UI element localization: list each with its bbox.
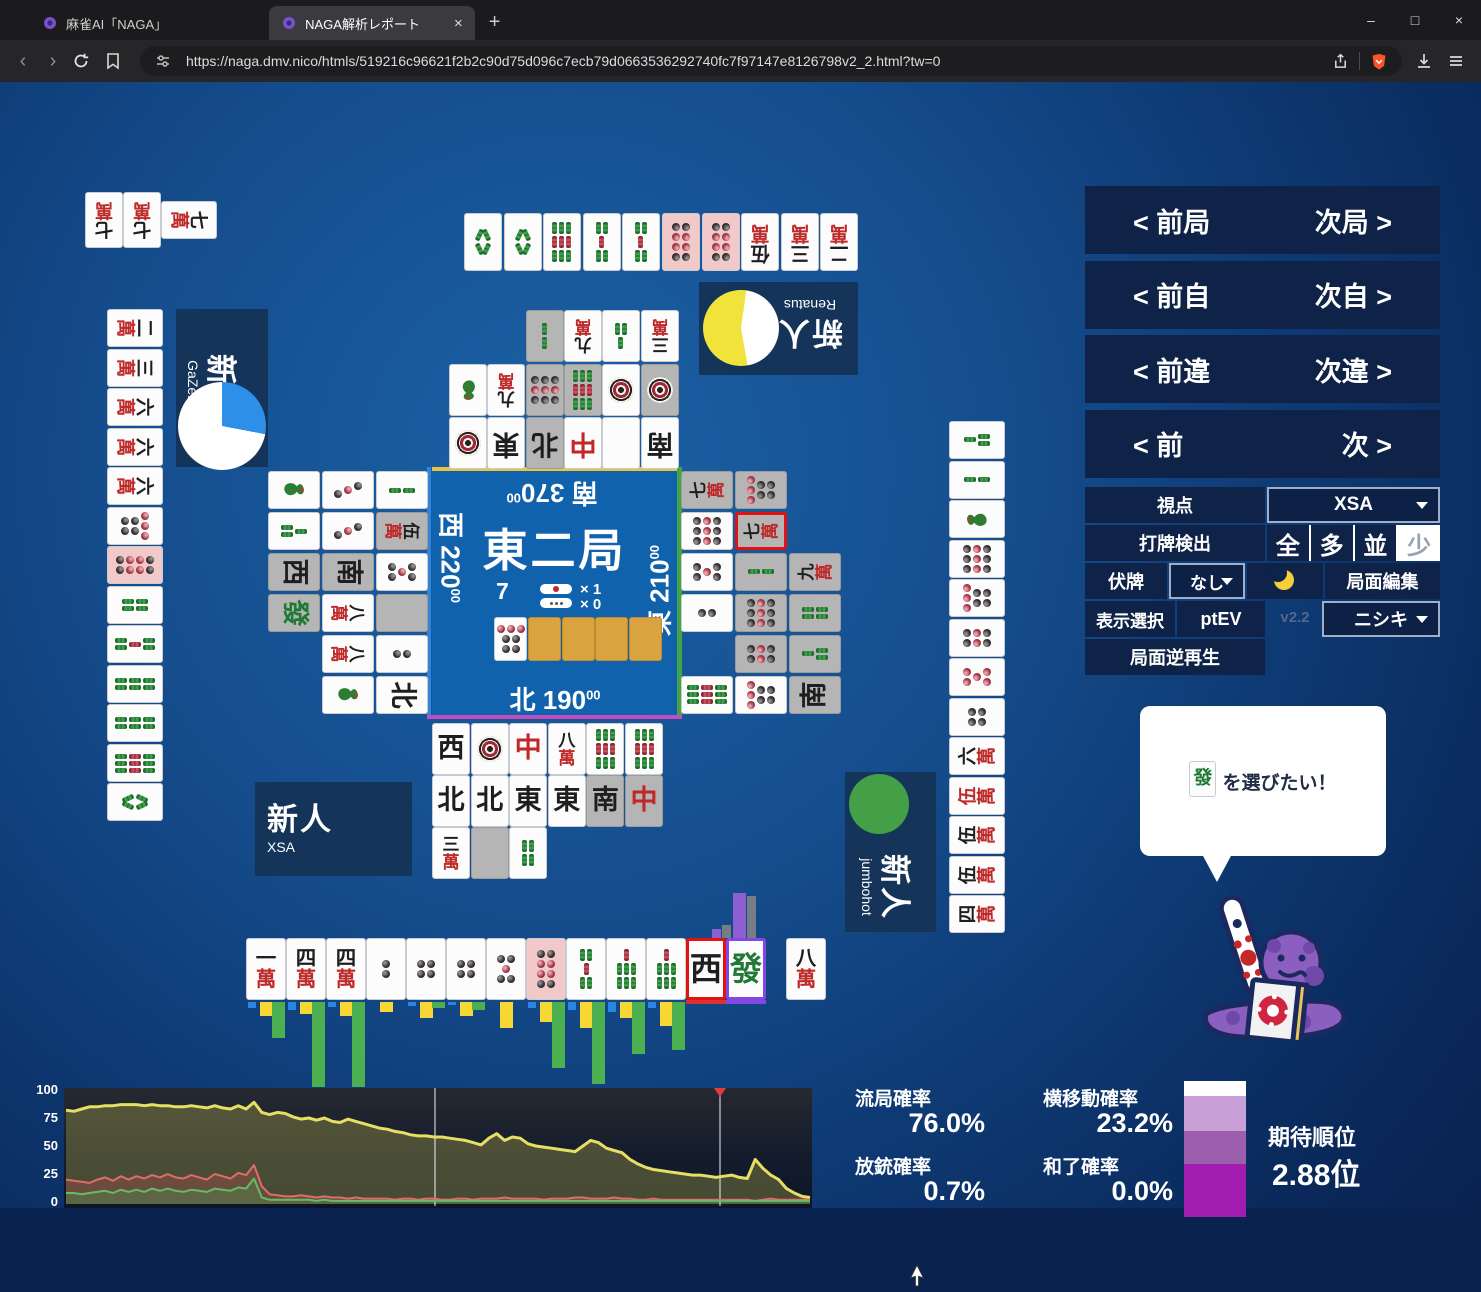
discard-eval-bar — [288, 1002, 296, 1010]
menu-icon[interactable] — [1443, 52, 1469, 70]
right-pond-tile-9m: 九萬 — [789, 553, 841, 591]
bottom-pond-tile-3m: 三萬 — [432, 827, 470, 879]
top-pond-tile-1p — [449, 417, 487, 469]
bottom-pond-tile-C: 中 — [625, 775, 663, 827]
right-pond-tile-7p — [735, 471, 787, 509]
left-hand-tile-3m: 三萬 — [107, 349, 163, 387]
expected-rank-label: 期待順位 — [1268, 1120, 1356, 1152]
bottom-hand-tile-2p[interactable] — [366, 938, 406, 1000]
right-hand-tile-6m: 六萬 — [949, 737, 1005, 775]
discard-eval-bar — [432, 1002, 445, 1008]
left-pond-tile-5m: 伍萬 — [376, 512, 428, 550]
left-hand-tile-6m: 六萬 — [107, 467, 163, 505]
hidden-dora-tile — [562, 617, 595, 661]
next-button[interactable]: 次 > — [1342, 424, 1392, 463]
dahai-detect-segmented: 全多並少 — [1267, 525, 1440, 561]
model-choice-bar — [712, 929, 721, 938]
top-pond-tile-2s — [526, 310, 564, 362]
viewpoint-label: 視点 — [1085, 487, 1265, 523]
left-hand-tile-6m: 六萬 — [107, 428, 163, 466]
bottom-pond-tile-9s — [586, 723, 624, 775]
discard-eval-bar — [552, 1002, 565, 1068]
top-pond-tile-9p — [526, 364, 564, 416]
viewpoint-select[interactable]: XSA — [1267, 487, 1440, 523]
bubble-text: を選びたい！ — [1222, 768, 1336, 795]
houra-value: 0.0% — [1043, 1176, 1173, 1207]
share-icon[interactable] — [1327, 53, 1353, 70]
bottom-hand-tile-4p[interactable] — [406, 938, 446, 1000]
discard-eval-bar — [608, 1002, 616, 1012]
top-hand-tile-3m: 三萬 — [781, 213, 819, 271]
discard-eval-bar — [312, 1002, 325, 1087]
brave-shield-icon[interactable] — [1366, 52, 1392, 71]
discard-eval-bar — [380, 1002, 393, 1012]
chart-y-tick: 50 — [18, 1138, 58, 1153]
left-pond-tile-2p — [376, 635, 428, 673]
yokoidou-label: 横移動確率 — [1043, 1084, 1138, 1111]
top-hand-tile-2m: 二萬 — [820, 213, 858, 271]
chart-y-tick: 75 — [18, 1110, 58, 1125]
right-hand-tile-0p — [949, 658, 1005, 696]
wall-count: 7 — [496, 578, 509, 605]
model-choice-bar — [747, 896, 756, 938]
nav-row: < 前次 > — [1085, 410, 1440, 478]
right-pond-tile-3s — [789, 635, 841, 673]
tab1-label: 麻雀AI「NAGA」 — [66, 14, 167, 33]
divider — [1359, 52, 1360, 70]
right-pond-tile-9s — [681, 676, 733, 714]
left-hand-tile-7p — [107, 507, 163, 545]
dahai-detect-label: 打牌検出 — [1085, 525, 1265, 561]
naga-favicon-icon — [281, 15, 297, 31]
bottom-pond-tile-S: 南 — [586, 775, 624, 827]
score-top: 南 37000 — [472, 476, 632, 513]
tile-underline — [726, 1000, 766, 1004]
expected-rank-bar — [1184, 1081, 1246, 1217]
discard-eval-bar — [472, 1002, 485, 1010]
naga-report-page: 南 37000 西 22000 東 21000 北 19000 東二局 7 × … — [0, 82, 1481, 1208]
tile-underline — [686, 1000, 726, 1004]
player-bottom-rank: 新人 — [267, 794, 333, 839]
left-hand-tile-9s — [107, 744, 163, 782]
mouse-cursor-icon — [908, 1265, 926, 1292]
top-pond-tile-3s — [602, 310, 640, 362]
dahai-option-並[interactable]: 並 — [1355, 525, 1399, 561]
right-pond-tile-2p — [681, 594, 733, 632]
top-pond-tile-S: 南 — [641, 417, 679, 469]
discard-eval-bar — [632, 1002, 645, 1054]
naga-speech-bubble: 發を選びたい！ — [1140, 706, 1386, 856]
forward-icon[interactable]: › — [38, 50, 68, 73]
reload-icon[interactable] — [68, 52, 94, 70]
model-select[interactable]: ニシキ — [1322, 601, 1440, 637]
bottom-pond-tile-C: 中 — [509, 723, 547, 775]
bottom-pond-tile-8m: 八萬 — [548, 723, 586, 775]
top-pond-tile-C: 中 — [564, 417, 602, 469]
discard-eval-bar — [248, 1002, 256, 1008]
right-pond-tile-5p — [681, 553, 733, 591]
hidden-dora-tile — [528, 617, 561, 661]
chart-y-tick: 0 — [18, 1194, 58, 1209]
top-pond-tile-9m: 九萬 — [564, 310, 602, 362]
right-pond-tile-9p — [735, 594, 787, 632]
nav-row: < 前自次自 > — [1085, 261, 1440, 329]
discard-eval-bar — [272, 1002, 285, 1038]
player-right-name: 新人jumbohot — [865, 822, 915, 952]
prev-button[interactable]: < 前 — [1133, 424, 1183, 463]
top-hand-tile-9s — [543, 213, 581, 271]
rank-bar-segment — [1184, 1096, 1246, 1131]
yokoidou-value: 23.2% — [1043, 1108, 1173, 1139]
right-hand-tile-7p — [949, 579, 1005, 617]
bottom-hand-tile-P[interactable]: 發 — [726, 938, 766, 1000]
bottom-pond-tile-4s — [509, 827, 547, 879]
tab-close-icon[interactable]: × — [454, 15, 463, 32]
reverse-replay-button[interactable]: 局面逆再生 — [1085, 639, 1265, 675]
left-pond-tile-N: 北 — [376, 676, 428, 714]
dora-indicator-tile-7p — [494, 617, 527, 661]
top-pond-tile-Hk — [602, 417, 640, 469]
rank-bar-segment — [1184, 1131, 1246, 1164]
tab-naga-home[interactable]: 麻雀AI「NAGA」 — [30, 6, 179, 40]
right-hand-tile-2s — [949, 461, 1005, 499]
left-pond-tile-W: 西 — [268, 553, 320, 591]
top-pond-tile-1p — [641, 364, 679, 416]
right-pond-tile-7p — [735, 676, 787, 714]
discard-eval-bar — [568, 1002, 576, 1010]
top-hand-tile-8s — [504, 213, 542, 271]
ryuukyoku-value: 76.0% — [855, 1108, 985, 1139]
nav-row: < 前違次違 > — [1085, 335, 1440, 403]
honba-stick-icon — [540, 598, 572, 608]
discard-eval-bar — [648, 1002, 656, 1008]
discard-eval-bar — [528, 1002, 536, 1008]
bookmark-icon[interactable] — [100, 52, 126, 70]
new-tab-button[interactable]: + — [489, 11, 501, 34]
next-button[interactable]: 次局 > — [1315, 201, 1392, 240]
hidden-dora-tile — [629, 617, 662, 661]
naga-favicon-icon — [42, 15, 58, 31]
top-pond-tile-E: 東 — [487, 417, 525, 469]
prev-button[interactable]: < 前局 — [1133, 201, 1210, 240]
back-icon[interactable]: ‹ — [8, 50, 38, 73]
prev-button[interactable]: < 前違 — [1133, 350, 1210, 389]
download-icon[interactable] — [1411, 52, 1437, 70]
fusehai-select[interactable]: なし — [1169, 563, 1245, 599]
top-hand-tile-8p — [702, 213, 740, 271]
bottom-hand-tile-8p[interactable] — [526, 938, 566, 1000]
dahai-option-全[interactable]: 全 — [1267, 525, 1311, 561]
right-hand-tile-5m: 伍萬 — [949, 816, 1005, 854]
browser-tab-bar: 麻雀AI「NAGA」 NAGA解析レポート × + – □ × — [0, 0, 1481, 40]
discard-eval-bar — [592, 1002, 605, 1084]
right-hand-tile-9p — [949, 540, 1005, 578]
url-text: https://naga.dmv.nico/htmls/519216c96621… — [186, 53, 1327, 69]
chart-y-tick: 25 — [18, 1166, 58, 1181]
right-pond-tile-2s — [735, 553, 787, 591]
right-hand-tile-0m: 伍萬 — [949, 777, 1005, 815]
window-maximize-button[interactable]: □ — [1393, 12, 1437, 28]
bottom-pond-tile-9s — [625, 723, 663, 775]
left-hand-tile-4s — [107, 586, 163, 624]
bottom-hand-tile-7s[interactable] — [606, 938, 646, 1000]
right-hand-tile-4m: 四萬 — [949, 895, 1005, 933]
bottom-hand-tile-4p[interactable] — [446, 938, 486, 1000]
top-pond-tile-1p — [602, 364, 640, 416]
display-value-button[interactable]: ptEV — [1177, 601, 1265, 637]
nav-row: < 前局次局 > — [1085, 186, 1440, 254]
left-hand-tile-6s — [107, 665, 163, 703]
top-meld-tile-7m: 七萬 — [85, 192, 123, 248]
bottom-hand-tile-7s[interactable] — [646, 938, 686, 1000]
left-pond-tile-P: 發 — [268, 594, 320, 632]
left-hand-tile-6m: 六萬 — [107, 388, 163, 426]
left-pond-tile-3p — [322, 471, 374, 509]
left-pond-tile-3p — [322, 512, 374, 550]
right-hand-tile-3s — [949, 421, 1005, 459]
prev-button[interactable]: < 前自 — [1133, 275, 1210, 314]
right-pond-tile-S: 南 — [789, 676, 841, 714]
chevron-down-icon — [1221, 578, 1233, 585]
top-meld-tile-7m: 七萬 — [123, 192, 161, 248]
moon-icon — [1274, 570, 1296, 592]
window-minimize-button[interactable]: – — [1349, 12, 1393, 28]
houjuu-label: 放銃確率 — [855, 1152, 931, 1179]
display-select-label: 表示選択 — [1085, 601, 1175, 637]
discard-eval-bar — [500, 1002, 513, 1028]
right-pond-tile-7m: 七萬 — [735, 512, 787, 550]
right-hand-tile-5m: 伍萬 — [949, 856, 1005, 894]
right-pond-tile-6p — [735, 635, 787, 673]
top-hand-tile-8p — [662, 213, 700, 271]
dark-mode-button[interactable] — [1247, 563, 1323, 599]
window-controls: – □ × — [1349, 0, 1481, 40]
round-label: 東二局 — [432, 514, 677, 579]
bottom-hand-tile-4m[interactable]: 四萬 — [326, 938, 366, 1000]
left-pond-tile-1s — [268, 471, 320, 509]
bottom-hand-tile-5p[interactable] — [486, 938, 526, 1000]
site-settings-icon[interactable] — [150, 53, 176, 69]
board-edit-button[interactable]: 局面編集 — [1325, 563, 1440, 599]
houra-label: 和了確率 — [1043, 1152, 1119, 1179]
model-choice-bar — [733, 893, 746, 938]
right-pond-tile-7m: 七萬 — [681, 471, 733, 509]
version-label: v2.2 — [1270, 609, 1320, 626]
bottom-pond-tile-E: 東 — [548, 775, 586, 827]
discard-eval-bar — [328, 1002, 336, 1007]
left-hand-tile-2m: 二萬 — [107, 309, 163, 347]
left-hand-tile-6s — [107, 704, 163, 742]
bottom-pond-tile-1p — [471, 723, 509, 775]
right-hand-tile-4p — [949, 698, 1005, 736]
discard-eval-bar — [448, 1002, 456, 1005]
honba-stick-count: × 0 — [580, 596, 601, 613]
expected-rank-value: 2.88位 — [1272, 1150, 1360, 1194]
chevron-down-icon — [1416, 616, 1428, 623]
bottom-pond-tile-E: 東 — [509, 775, 547, 827]
rank-bar-segment — [1184, 1164, 1246, 1217]
dahai-option-少[interactable]: 少 — [1398, 525, 1440, 561]
rank-bar-segment — [1184, 1081, 1246, 1096]
fusehai-label: 伏牌 — [1085, 563, 1167, 599]
hidden-dora-tile — [595, 617, 628, 661]
bottom-hand-tile-W[interactable]: 西 — [686, 938, 726, 1000]
player-top-pie-chart — [703, 290, 779, 366]
speech-bubble-tail — [1202, 854, 1232, 882]
bottom-pond-tile-W: 西 — [432, 723, 470, 775]
right-hand-tile-6p — [949, 619, 1005, 657]
left-pond-tile-Hk — [376, 594, 428, 632]
top-pond-tile-3m: 三萬 — [641, 310, 679, 362]
bottom-pond-tile-N: 北 — [432, 775, 470, 827]
next-button[interactable]: 次違 > — [1315, 350, 1392, 389]
bottom-hand-draw-tile-8m[interactable]: 八萬 — [786, 938, 826, 1000]
model-choice-bar — [722, 925, 731, 938]
right-pond-tile-9p — [681, 512, 733, 550]
right-hand-tile-1s — [949, 500, 1005, 538]
left-pond-tile-1s — [322, 676, 374, 714]
bottom-hand-tile-4m[interactable]: 四萬 — [286, 938, 326, 1000]
discard-eval-bar — [352, 1002, 365, 1087]
win-probability-chart — [64, 1088, 812, 1208]
left-hand-tile-5s — [107, 625, 163, 663]
top-pond-tile-9s — [564, 364, 602, 416]
left-pond-tile-8m: 八萬 — [322, 594, 374, 632]
top-pond-tile-9m: 九萬 — [487, 364, 525, 416]
player-left-pie-chart — [178, 382, 266, 470]
riichi-stick-icon — [540, 584, 572, 594]
next-button[interactable]: 次自 > — [1315, 275, 1392, 314]
left-hand-tile-8s — [107, 783, 163, 821]
right-pond-tile-4s — [789, 594, 841, 632]
window-close-button[interactable]: × — [1437, 12, 1481, 28]
url-bar[interactable]: https://naga.dmv.nico/htmls/519216c96621… — [140, 46, 1402, 76]
left-hand-tile-8p — [107, 546, 163, 584]
bottom-pond-tile-N: 北 — [471, 775, 509, 827]
top-hand-tile-5s — [583, 213, 621, 271]
bottom-hand-tile-1m[interactable]: 一萬 — [246, 938, 286, 1000]
left-pond-tile-5p — [376, 553, 428, 591]
top-hand-tile-5s — [622, 213, 660, 271]
chart-y-tick: 100 — [18, 1082, 58, 1097]
bottom-hand-tile-5s[interactable] — [566, 938, 606, 1000]
left-pond-tile-S: 南 — [322, 553, 374, 591]
tab2-label: NAGA解析レポート — [305, 14, 420, 33]
player-box-bottom: 新人 XSA — [255, 782, 412, 876]
bottom-pond-tile-Hk — [471, 827, 509, 879]
discard-eval-bar — [672, 1002, 685, 1050]
ryuukyoku-label: 流局確率 — [855, 1084, 931, 1111]
top-hand-tile-5m: 伍萬 — [741, 213, 779, 271]
player-bottom-name: XSA — [267, 839, 333, 855]
bubble-tile-P: 發 — [1189, 761, 1216, 797]
left-pond-tile-3s — [268, 512, 320, 550]
dahai-option-多[interactable]: 多 — [1311, 525, 1355, 561]
top-hand-tile-8s — [464, 213, 502, 271]
score-bottom: 北 19000 — [460, 680, 650, 717]
tab-naga-report[interactable]: NAGA解析レポート × — [269, 6, 475, 40]
top-pond-tile-1s — [449, 364, 487, 416]
left-pond-tile-2s — [376, 471, 428, 509]
houjuu-value: 0.7% — [855, 1176, 985, 1207]
discard-eval-bar — [408, 1002, 416, 1006]
naga-mascot-icon — [1188, 890, 1358, 1045]
top-pond-tile-N: 北 — [526, 417, 564, 469]
top-meld-tile-7m: 七萬 — [161, 201, 217, 239]
chevron-down-icon — [1416, 502, 1428, 509]
left-pond-tile-8m: 八萬 — [322, 635, 374, 673]
